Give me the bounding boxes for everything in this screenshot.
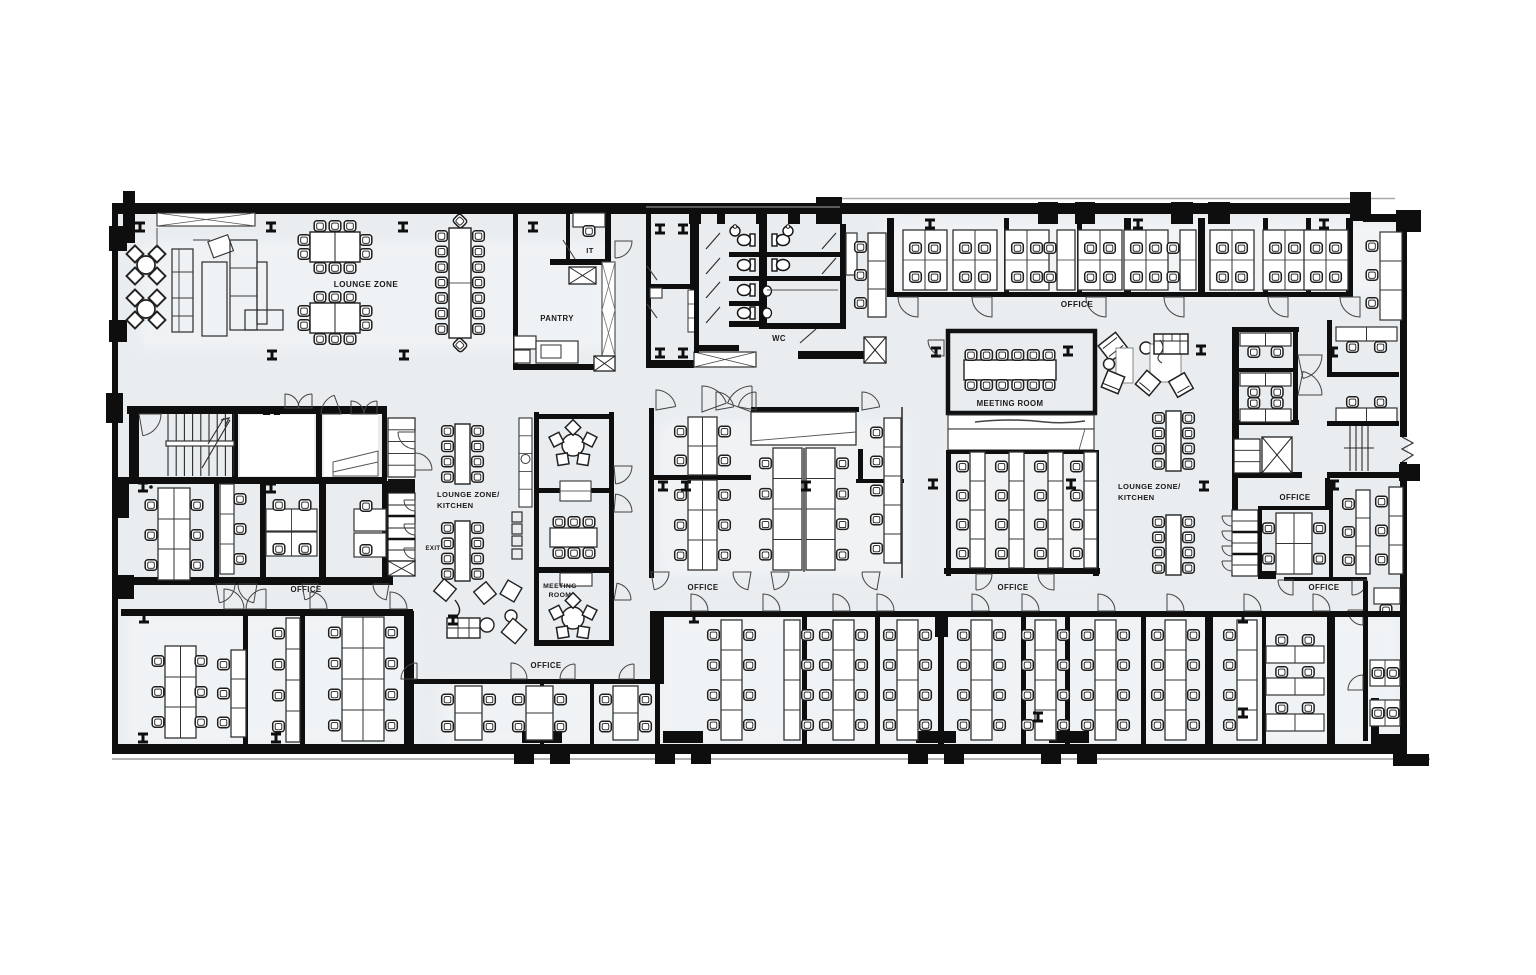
svg-text:KITCHEN: KITCHEN bbox=[437, 501, 474, 510]
svg-text:OFFICE: OFFICE bbox=[1309, 583, 1340, 592]
svg-text:LOUNGE ZONE/: LOUNGE ZONE/ bbox=[437, 490, 500, 499]
svg-text:PANTRY: PANTRY bbox=[540, 314, 574, 323]
svg-text:OFFICE: OFFICE bbox=[688, 583, 719, 592]
svg-text:MEETING: MEETING bbox=[543, 583, 577, 590]
svg-text:LOUNGE ZONE: LOUNGE ZONE bbox=[334, 280, 399, 289]
svg-text:IT: IT bbox=[586, 246, 593, 255]
svg-text:WC: WC bbox=[772, 334, 786, 343]
svg-text:EXIT: EXIT bbox=[426, 546, 441, 552]
svg-text:OFFICE: OFFICE bbox=[531, 661, 562, 670]
svg-text:LOUNGE ZONE/: LOUNGE ZONE/ bbox=[1118, 482, 1181, 491]
svg-text:OFFICE: OFFICE bbox=[1280, 493, 1311, 502]
svg-text:KITCHEN: KITCHEN bbox=[1118, 493, 1155, 502]
svg-text:OFFICE: OFFICE bbox=[998, 583, 1029, 592]
svg-text:MEETING ROOM: MEETING ROOM bbox=[977, 399, 1044, 408]
